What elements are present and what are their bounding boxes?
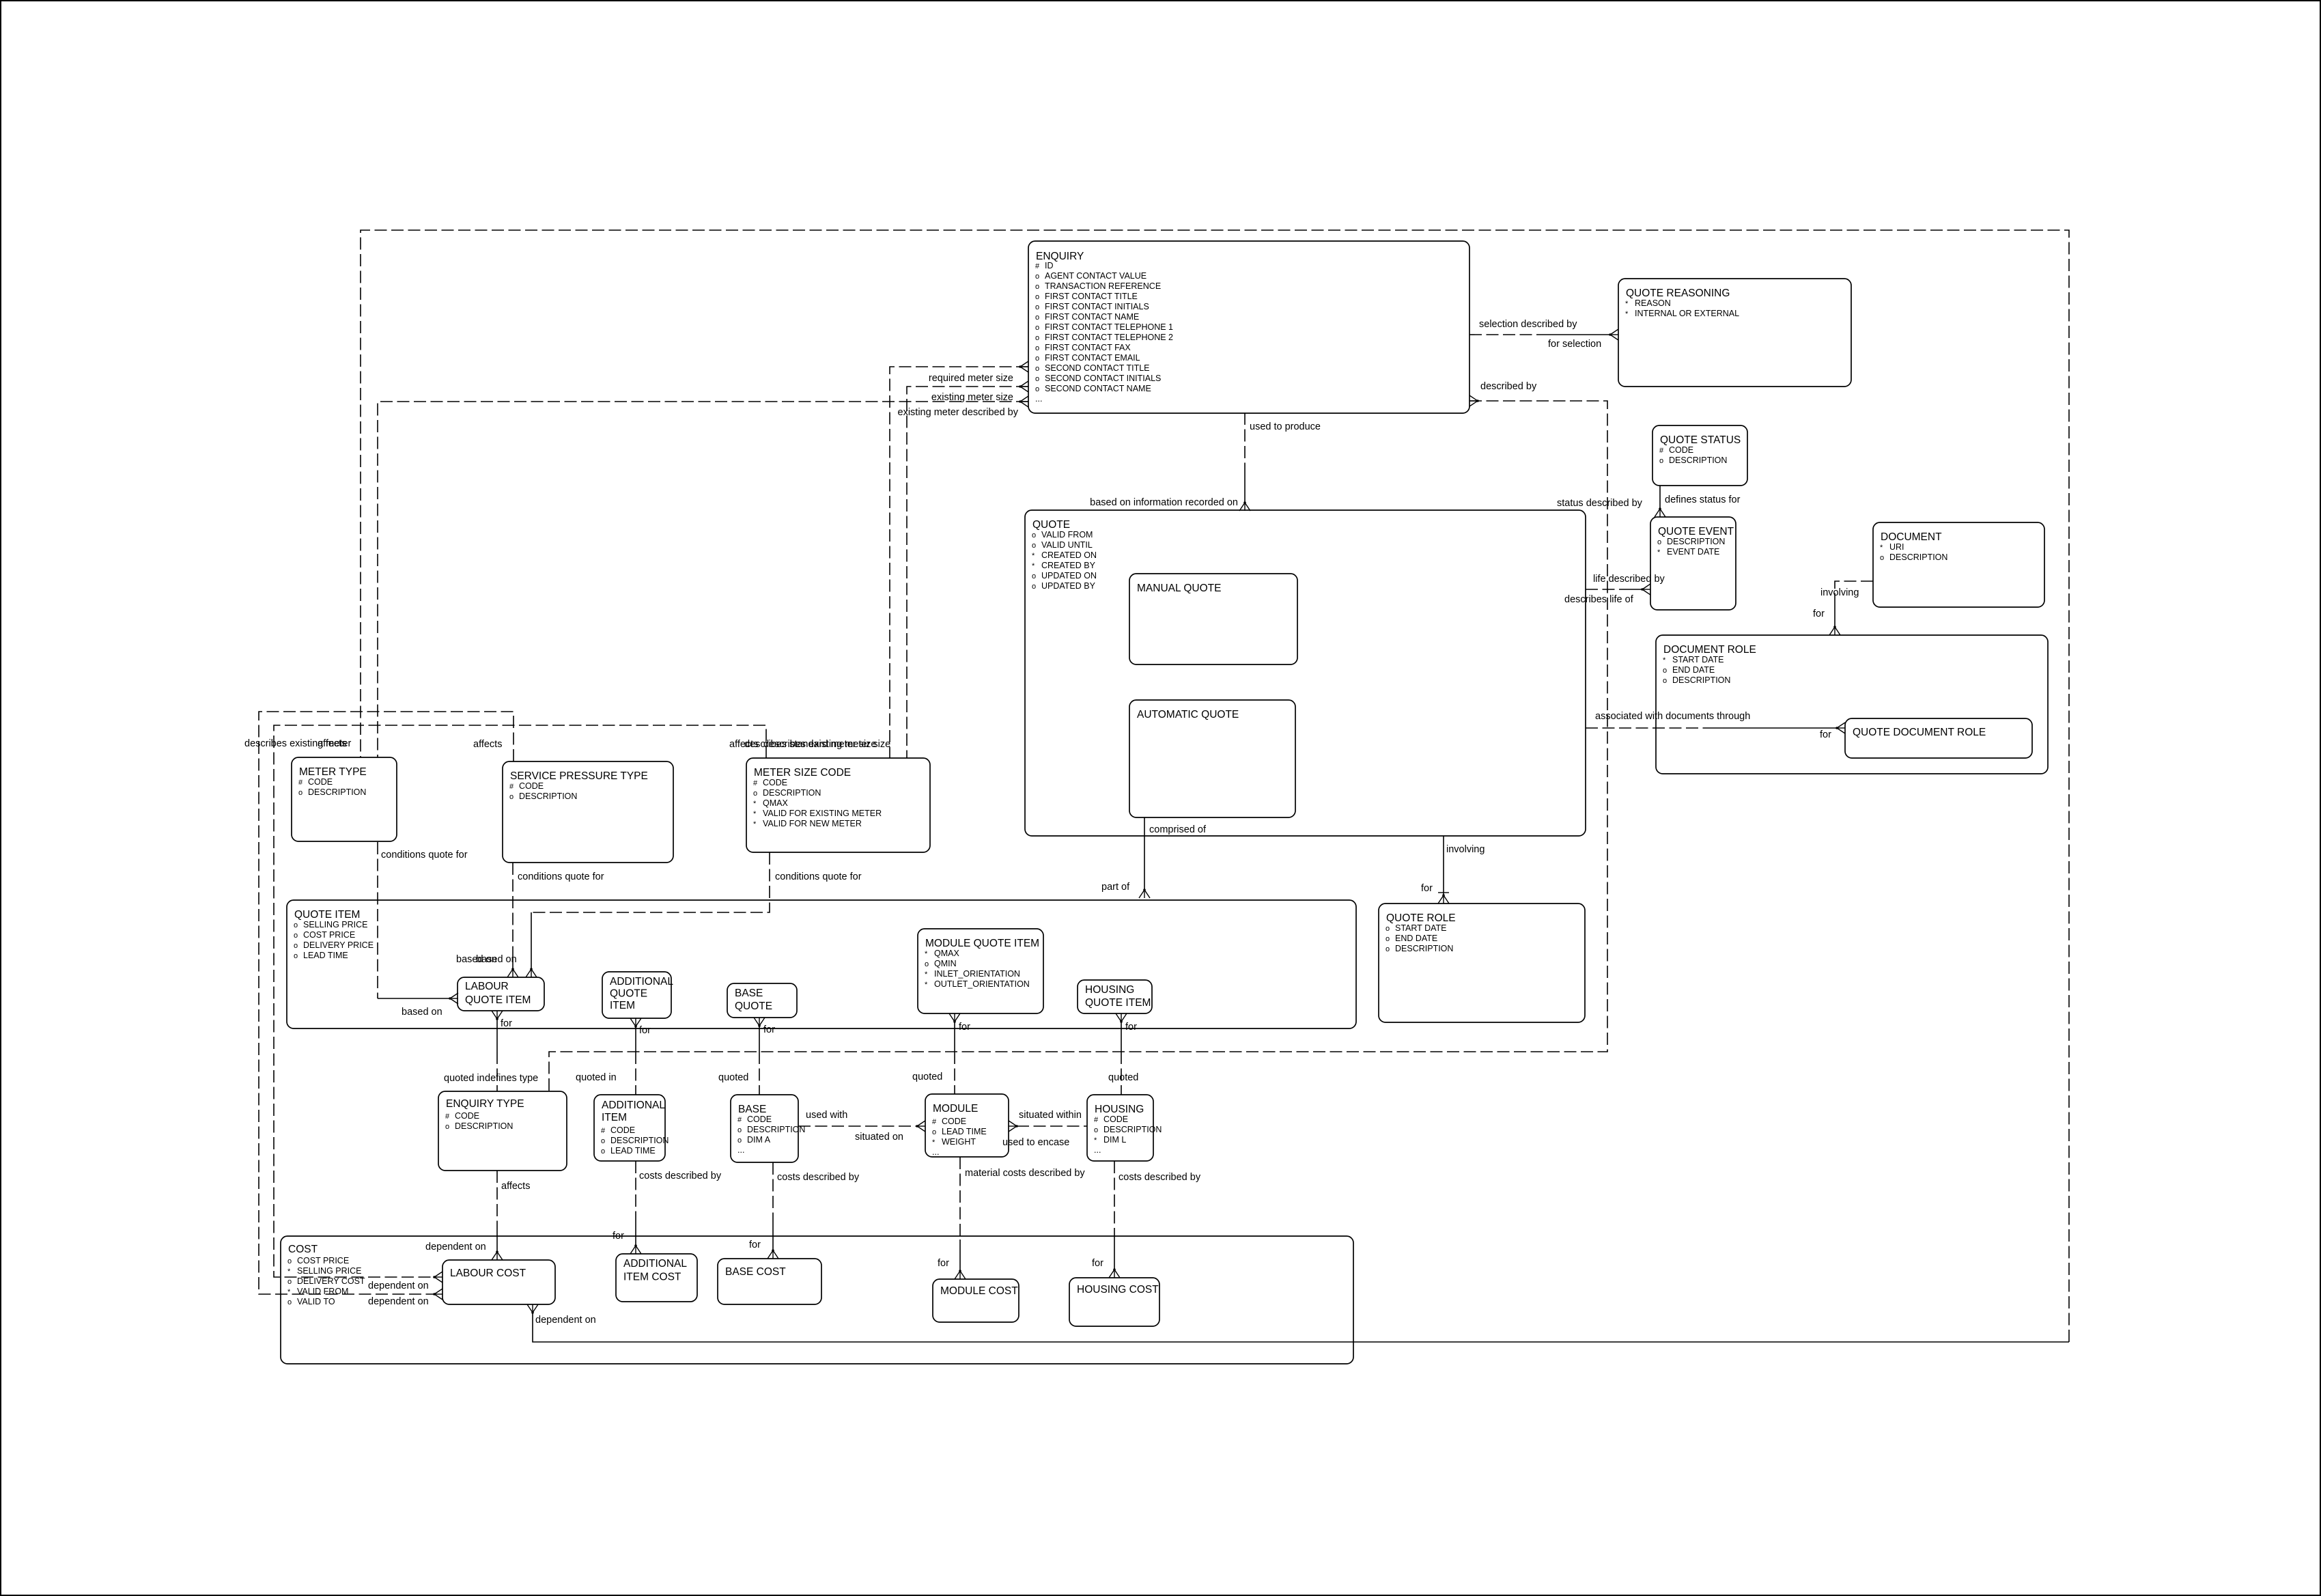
svg-text:ENQUIRY: ENQUIRY [1036,251,1084,262]
svg-text:for: for [1125,1022,1137,1033]
svg-text:DESCRIPTION: DESCRIPTION [1667,537,1725,546]
svg-text:for selection: for selection [1548,339,1601,350]
svg-text:DESCRIPTION: DESCRIPTION [763,788,821,798]
svg-text:CODE: CODE [455,1111,479,1121]
svg-text:costs described by: costs described by [639,1171,722,1181]
svg-text:COST: COST [288,1244,318,1255]
svg-text:based on information recorded: based on information recorded on [1090,497,1238,508]
svg-text:o: o [294,921,298,929]
svg-text:o: o [1035,313,1039,322]
svg-text:#: # [1035,262,1040,270]
svg-text:o: o [932,1128,936,1136]
svg-text:o: o [287,1278,292,1286]
svg-text:METER TYPE: METER TYPE [299,766,367,778]
svg-text:o: o [1385,925,1390,933]
svg-text:used with: used with [806,1110,847,1121]
svg-text:ITEM COST: ITEM COST [623,1272,681,1283]
svg-text:*: * [1625,300,1629,308]
svg-text:associated with documents thro: associated with documents through [1595,711,1750,722]
svg-text:SECOND CONTACT TITLE: SECOND CONTACT TITLE [1045,363,1150,373]
svg-text:o: o [1035,365,1039,373]
svg-text:affects: affects [473,739,502,750]
svg-text:CODE: CODE [308,777,333,787]
svg-text:o: o [737,1136,742,1145]
svg-text:COST PRICE: COST PRICE [297,1256,349,1265]
svg-text:MODULE COST: MODULE COST [940,1285,1018,1297]
svg-text:based on: based on [402,1007,442,1018]
svg-text:dependent on: dependent on [368,1296,429,1307]
svg-text:#: # [1094,1116,1099,1124]
svg-text:o: o [294,952,298,960]
svg-text:status described by: status described by [1557,498,1643,509]
svg-text:for: for [749,1240,761,1250]
svg-text:o: o [445,1123,449,1131]
svg-text:QUOTE ITEM: QUOTE ITEM [465,994,531,1006]
svg-text:o: o [1094,1126,1098,1134]
svg-text:describes life of: describes life of [1564,594,1634,605]
svg-text:BASE: BASE [735,988,763,999]
svg-text:SELLING PRICE: SELLING PRICE [297,1266,361,1276]
svg-text:END DATE: END DATE [1395,934,1437,943]
svg-text:for: for [938,1258,949,1269]
svg-text:*: * [1032,552,1035,560]
svg-text:defines status for: defines status for [1665,494,1741,505]
svg-text:FIRST CONTACT FAX: FIRST CONTACT FAX [1045,343,1131,352]
svg-text:AGENT CONTACT VALUE: AGENT CONTACT VALUE [1045,271,1147,281]
svg-text:QUOTE EVENT: QUOTE EVENT [1658,526,1734,537]
svg-text:ENQUIRY TYPE: ENQUIRY TYPE [446,1098,524,1110]
svg-text:VALID FROM: VALID FROM [1041,530,1093,540]
svg-text:SECOND CONTACT NAME: SECOND CONTACT NAME [1045,384,1151,393]
svg-text:#: # [1659,447,1664,455]
svg-text:conditions quote for: conditions quote for [518,871,604,882]
svg-text:o: o [1032,542,1036,550]
svg-text:TRANSACTION REFERENCE: TRANSACTION REFERENCE [1045,281,1161,291]
svg-text:METER SIZE CODE: METER SIZE CODE [754,767,851,779]
svg-text:HOUSING: HOUSING [1095,1104,1144,1115]
svg-text:COST PRICE: COST PRICE [303,930,355,940]
svg-text:DELIVERY PRICE: DELIVERY PRICE [303,940,374,950]
svg-text:o: o [1385,945,1390,953]
svg-text:*: * [287,1268,291,1276]
svg-text:ITEM: ITEM [610,1000,635,1011]
svg-text:dependent on: dependent on [368,1280,429,1291]
svg-text:CREATED ON: CREATED ON [1041,550,1097,560]
svg-text:involving: involving [1446,844,1485,855]
svg-text:OUTLET_ORIENTATION: OUTLET_ORIENTATION [934,979,1030,989]
svg-text:*: * [753,810,757,818]
svg-text:...: ... [737,1145,744,1155]
svg-text:CODE: CODE [610,1125,635,1135]
svg-text:DESCRIPTION: DESCRIPTION [1889,552,1947,562]
svg-text:FIRST CONTACT NAME: FIRST CONTACT NAME [1045,312,1139,322]
svg-text:INTERNAL OR EXTERNAL: INTERNAL OR EXTERNAL [1635,309,1739,318]
svg-text:for: for [1813,608,1825,619]
svg-text:material costs described by: material costs described by [965,1168,1085,1179]
svg-text:for: for [763,1024,775,1035]
svg-text:existing meter size: existing meter size [931,392,1013,403]
svg-text:#: # [298,779,303,787]
svg-text:ID: ID [1045,261,1054,270]
svg-text:QUOTE DOCUMENT ROLE: QUOTE DOCUMENT ROLE [1853,727,1986,738]
svg-text:o: o [1035,303,1039,311]
svg-text:LEAD TIME: LEAD TIME [610,1146,656,1156]
svg-text:ADDITIONAL: ADDITIONAL [623,1258,687,1270]
svg-text:for: for [1092,1258,1103,1269]
svg-text:*: * [1625,310,1629,318]
svg-text:CODE: CODE [763,778,787,787]
svg-text:costs described by: costs described by [1119,1172,1201,1183]
svg-text:existing meter described by: existing meter described by [898,407,1019,418]
svg-text:LABOUR COST: LABOUR COST [450,1268,526,1279]
svg-text:o: o [1035,354,1039,363]
svg-text:UPDATED BY: UPDATED BY [1041,581,1096,591]
svg-text:#: # [737,1116,742,1124]
svg-text:o: o [1032,572,1036,580]
svg-text:ITEM: ITEM [602,1112,627,1123]
svg-text:QUOTE ITEM: QUOTE ITEM [294,909,360,921]
svg-text:#: # [509,783,514,791]
svg-text:QMIN: QMIN [934,959,957,968]
svg-text:DESCRIPTION: DESCRIPTION [308,787,366,797]
svg-text:affects: affects [501,1181,530,1192]
svg-text:FIRST CONTACT TELEPHONE 1: FIRST CONTACT TELEPHONE 1 [1045,322,1173,332]
svg-text:*: * [753,820,757,828]
svg-text:DOCUMENT: DOCUMENT [1881,531,1942,543]
svg-text:*: * [925,970,928,979]
svg-text:QUOTE: QUOTE [735,1000,772,1012]
svg-text:DESCRIPTION: DESCRIPTION [1103,1125,1162,1134]
svg-text:*: * [932,1138,936,1147]
svg-text:FIRST CONTACT INITIALS: FIRST CONTACT INITIALS [1045,302,1149,311]
svg-text:...: ... [1035,394,1042,404]
svg-text:costs described by: costs described by [777,1172,860,1183]
svg-text:HOUSING: HOUSING [1085,984,1134,996]
svg-text:...: ... [932,1147,939,1157]
svg-text:o: o [1032,583,1036,591]
svg-text:quoted: quoted [1108,1072,1138,1083]
svg-text:quoted in: quoted in [576,1072,617,1083]
svg-text:VALID FROM: VALID FROM [297,1287,348,1296]
svg-text:QUOTE REASONING: QUOTE REASONING [1626,288,1730,299]
svg-text:MANUAL QUOTE: MANUAL QUOTE [1137,583,1221,594]
svg-text:#: # [601,1127,606,1135]
svg-text:o: o [1385,935,1390,943]
svg-text:CREATED BY: CREATED BY [1041,561,1096,570]
svg-text:o: o [298,789,303,797]
svg-text:*: * [287,1288,291,1296]
svg-text:QMAX: QMAX [934,949,959,958]
svg-text:described by: described by [1480,381,1537,392]
svg-text:o: o [1035,344,1039,352]
svg-text:for: for [1820,729,1831,740]
svg-text:quoted in: quoted in [444,1073,485,1084]
svg-text:for: for [959,1022,970,1033]
svg-text:QUOTE: QUOTE [610,988,647,1000]
svg-text:DESCRIPTION: DESCRIPTION [519,792,577,801]
svg-text:URI: URI [1889,542,1904,552]
svg-text:selection described by: selection described by [1479,319,1577,330]
svg-text:for: for [639,1025,651,1036]
svg-text:DELIVERY COST: DELIVERY COST [297,1276,365,1286]
svg-text:for: for [501,1018,512,1029]
svg-text:*: * [1032,562,1035,570]
svg-text:DESCRIPTION: DESCRIPTION [1669,456,1727,465]
svg-text:LEAD TIME: LEAD TIME [303,951,348,960]
svg-text:*: * [753,800,757,808]
svg-text:DESCRIPTION: DESCRIPTION [747,1125,805,1134]
svg-text:FIRST CONTACT TELEPHONE 2: FIRST CONTACT TELEPHONE 2 [1045,333,1173,342]
svg-text:*: * [925,981,928,989]
svg-text:DOCUMENT ROLE: DOCUMENT ROLE [1663,644,1756,656]
svg-text:BASE: BASE [738,1104,766,1115]
svg-text:DESCRIPTION: DESCRIPTION [1395,944,1453,953]
svg-text:VALID FOR NEW METER: VALID FOR NEW METER [763,819,862,828]
svg-text:situated within: situated within [1019,1110,1082,1121]
svg-text:conditions quote for: conditions quote for [775,871,862,882]
svg-text:SELLING PRICE: SELLING PRICE [303,920,367,929]
svg-text:#: # [753,779,758,787]
svg-text:o: o [1659,457,1663,465]
svg-text:CODE: CODE [1103,1115,1128,1124]
svg-text:DESCRIPTION: DESCRIPTION [1672,675,1730,685]
svg-text:FIRST CONTACT TITLE: FIRST CONTACT TITLE [1045,292,1138,301]
svg-text:#: # [445,1112,450,1121]
svg-text:VALID UNTIL: VALID UNTIL [1041,540,1093,550]
svg-text:o: o [1035,283,1039,291]
svg-text:*: * [925,950,928,958]
svg-text:CODE: CODE [1669,445,1693,455]
svg-text:AUTOMATIC QUOTE: AUTOMATIC QUOTE [1137,709,1239,720]
svg-text:QUOTE STATUS: QUOTE STATUS [1660,434,1741,446]
svg-text:comprised of: comprised of [1149,824,1207,835]
svg-text:REASON: REASON [1635,298,1671,308]
svg-text:*: * [1094,1136,1097,1145]
svg-text:o: o [1880,554,1884,562]
svg-text:DESCRIPTION: DESCRIPTION [610,1136,669,1145]
svg-text:o: o [1035,324,1039,332]
svg-text:QUOTE: QUOTE [1032,519,1070,531]
svg-text:CODE: CODE [747,1115,772,1124]
svg-text:o: o [294,932,298,940]
svg-text:EVENT DATE: EVENT DATE [1667,547,1719,557]
svg-text:...: ... [1094,1145,1101,1155]
svg-text:*: * [1657,548,1661,557]
svg-text:DIM L: DIM L [1103,1135,1126,1145]
svg-text:used to encase: used to encase [1002,1137,1069,1148]
svg-text:#: # [932,1118,937,1126]
svg-text:o: o [294,942,298,950]
svg-text:o: o [601,1137,605,1145]
svg-text:QMAX: QMAX [763,798,788,808]
svg-text:o: o [1035,334,1039,342]
svg-text:FIRST CONTACT EMAIL: FIRST CONTACT EMAIL [1045,353,1140,363]
svg-text:MODULE QUOTE ITEM: MODULE QUOTE ITEM [925,938,1039,949]
svg-text:o: o [1035,385,1039,393]
svg-text:o: o [509,793,514,801]
svg-text:UPDATED ON: UPDATED ON [1041,571,1097,580]
svg-text:QUOTE ITEM: QUOTE ITEM [1085,997,1151,1009]
svg-text:LEAD TIME: LEAD TIME [942,1127,987,1136]
svg-text:*: * [1880,544,1883,552]
svg-text:HOUSING COST: HOUSING COST [1077,1284,1159,1296]
svg-text:o: o [1032,531,1036,540]
svg-text:CODE: CODE [942,1117,966,1126]
svg-text:affects: affects [318,738,346,749]
svg-text:quoted: quoted [718,1072,748,1083]
svg-text:describes existing meter size: describes existing meter size [763,739,890,750]
svg-text:DIM A: DIM A [747,1135,771,1145]
svg-text:START DATE: START DATE [1395,923,1446,933]
svg-text:SERVICE PRESSURE TYPE: SERVICE PRESSURE TYPE [510,770,648,782]
svg-text:o: o [1035,272,1039,281]
svg-text:for: for [1421,883,1433,894]
svg-text:o: o [1035,375,1039,383]
svg-text:dependent on: dependent on [425,1242,486,1252]
svg-text:o: o [1657,538,1661,546]
svg-text:o: o [1035,293,1039,301]
svg-text:for: for [613,1231,624,1242]
svg-text:BASE COST: BASE COST [725,1266,786,1278]
svg-text:o: o [601,1147,605,1156]
svg-text:situated on: situated on [855,1132,903,1143]
svg-text:o: o [1663,667,1667,675]
svg-text:END DATE: END DATE [1672,665,1715,675]
svg-text:o: o [287,1257,292,1265]
svg-text:life described by: life described by [1593,574,1665,585]
svg-text:ADDITIONAL: ADDITIONAL [610,976,673,988]
svg-text:involving: involving [1820,587,1859,598]
svg-text:quoted: quoted [912,1072,942,1082]
svg-text:o: o [925,960,929,968]
svg-text:QUOTE ROLE: QUOTE ROLE [1386,912,1456,924]
svg-text:required meter size: required meter size [929,373,1013,384]
svg-text:o: o [737,1126,742,1134]
svg-text:o: o [287,1298,292,1306]
svg-text:dependent on: dependent on [535,1315,596,1326]
svg-text:defines type: defines type [485,1073,538,1084]
svg-text:CODE: CODE [519,781,544,791]
svg-text:VALID FOR EXISTING METER: VALID FOR EXISTING METER [763,809,882,818]
svg-text:ADDITIONAL: ADDITIONAL [602,1100,665,1111]
svg-text:o: o [1663,677,1667,685]
svg-text:MODULE: MODULE [933,1103,978,1115]
svg-text:*: * [1663,656,1666,664]
svg-text:START DATE: START DATE [1672,655,1724,664]
svg-text:VALID TO: VALID TO [297,1297,335,1306]
svg-text:used to produce: used to produce [1250,421,1321,432]
svg-text:part of: part of [1101,882,1130,893]
svg-text:SECOND CONTACT INITIALS: SECOND CONTACT INITIALS [1045,374,1161,383]
svg-text:INLET_ORIENTATION: INLET_ORIENTATION [934,969,1020,979]
svg-text:LABOUR: LABOUR [465,981,509,992]
svg-text:based on: based on [476,954,517,965]
svg-text:DESCRIPTION: DESCRIPTION [455,1121,513,1131]
svg-text:conditions quote for: conditions quote for [381,850,468,860]
svg-text:o: o [753,789,757,798]
svg-text:WEIGHT: WEIGHT [942,1137,976,1147]
